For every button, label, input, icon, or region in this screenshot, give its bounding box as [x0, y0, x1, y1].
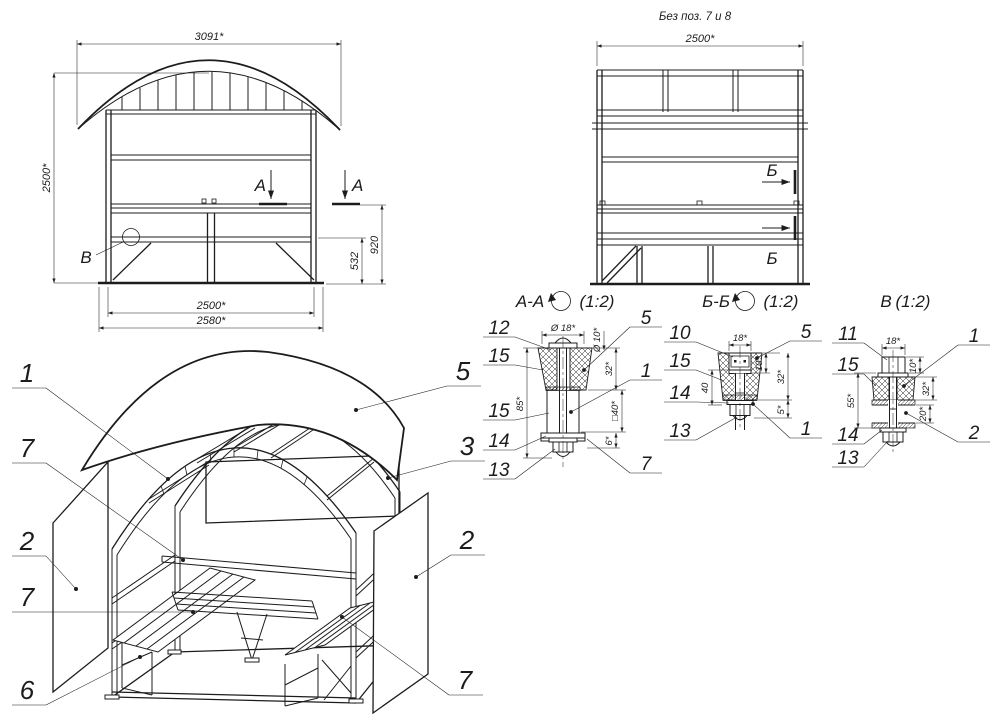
- section-b-label-top: Б: [766, 161, 777, 180]
- dim-text: 5*: [776, 405, 787, 414]
- callout-13: 13: [488, 460, 510, 481]
- dim-text: 18*: [886, 336, 901, 347]
- callout-1: 1: [641, 361, 652, 382]
- section-v: В (1:2) 18*: [832, 292, 990, 469]
- callout-15: 15: [837, 355, 859, 376]
- roof-truss: [106, 72, 316, 114]
- callout-14: 14: [488, 431, 509, 452]
- dim-text: 920: [369, 235, 381, 254]
- callout-15b: 15: [488, 401, 510, 422]
- callout-5: 5: [801, 322, 812, 343]
- section-aa-scale: (1:2): [580, 292, 615, 311]
- dim-front-920: 920: [326, 205, 386, 284]
- front-bottom-structure: [98, 213, 324, 283]
- front-rails: [111, 155, 311, 242]
- dim-side-top: 2500*: [597, 33, 803, 66]
- section-a-label-left: А: [254, 176, 266, 195]
- table-beam: [162, 556, 356, 579]
- callout-13: 13: [837, 448, 859, 469]
- dim-front-left: 2500*: [41, 73, 209, 283]
- section-b-label-bottom: Б: [766, 249, 777, 268]
- callout-bench-left: 7: [20, 582, 36, 612]
- side-view: Без поз. 7 и 8 2500*: [590, 11, 810, 284]
- exploded-view: 1 7 2 7 6 5 3 2 7: [12, 351, 485, 713]
- left-brace: [113, 243, 151, 280]
- callout-1: 1: [969, 326, 980, 347]
- callout-rear-panel: 3: [460, 431, 475, 461]
- drawing-canvas: В А А 3091* 2500* 920: [0, 0, 1000, 727]
- dim-front-532: 532: [318, 238, 366, 284]
- callout-13: 13: [669, 421, 691, 442]
- detail-v-label: В: [80, 248, 91, 267]
- section-a-markers: А А: [254, 170, 364, 204]
- rotated-symbol-icon: [732, 292, 755, 311]
- rotated-symbol-icon: [548, 292, 571, 311]
- dim-text: 32*: [921, 382, 932, 397]
- side-panel-left: [53, 462, 108, 692]
- dim-text: 20*: [918, 407, 929, 423]
- dim-text: 18*: [733, 333, 748, 344]
- callout-bench-right: 7: [458, 665, 474, 695]
- callout-12: 12: [488, 318, 510, 339]
- callout-7: 7: [641, 454, 653, 475]
- front-view: В А А 3091* 2500* 920: [41, 31, 386, 332]
- dim-text: 2500*: [685, 33, 715, 45]
- dim-text: 2500*: [41, 163, 53, 193]
- roof-sheet-outer-arc: [78, 60, 340, 130]
- right-brace: [276, 243, 314, 280]
- callout-14: 14: [837, 425, 858, 446]
- callout-roof-sheet: 5: [456, 356, 471, 386]
- frame-posts: [112, 492, 400, 700]
- section-v-title: В: [880, 292, 891, 311]
- drawing-sheet: В А А 3091* 2500* 920: [0, 0, 1000, 727]
- side-view-note: Без поз. 7 и 8: [659, 11, 732, 23]
- section-bb-title: Б-Б: [702, 292, 730, 311]
- dim-text: 532: [349, 252, 361, 270]
- dim-text: 2500*: [196, 300, 226, 312]
- table-legs: [237, 612, 267, 660]
- section-b-markers: Б Б: [762, 161, 795, 268]
- dim-text: 2580*: [196, 315, 226, 327]
- dim-front-bottom-inner: 2500*: [108, 287, 314, 317]
- side-frame: [592, 70, 808, 245]
- detail-v-marker: В: [80, 229, 139, 268]
- dim-text: Ø 18*: [550, 323, 576, 334]
- dim-text: □40*: [610, 401, 621, 421]
- dim-text: 32*: [604, 362, 615, 377]
- dim-text: 6*: [604, 436, 615, 445]
- dim-front-top: 3091*: [77, 31, 341, 126]
- dim-text: 40: [700, 382, 711, 393]
- bottom-rails: [112, 645, 400, 703]
- callout-1: 1: [801, 419, 812, 440]
- dim-text: 3091*: [195, 31, 224, 43]
- dim-text: 10*: [908, 359, 919, 374]
- section-aa-geometry: [538, 336, 592, 467]
- callout-15: 15: [669, 351, 691, 372]
- section-aa-title: А-А: [515, 292, 544, 311]
- callout-5: 5: [641, 308, 652, 329]
- callout-14: 14: [669, 383, 690, 404]
- side-panel-right: [373, 493, 428, 713]
- callout-10: 10: [669, 323, 691, 344]
- callout-11: 11: [838, 324, 858, 345]
- callout-support: 6: [20, 675, 35, 705]
- callout-frame: 1: [20, 358, 34, 388]
- dim-text: 55*: [846, 394, 857, 409]
- dim-text: Ø 10*: [592, 328, 603, 354]
- section-bb: Б-Б (1:2) 1: [664, 292, 822, 443]
- section-a-label-right: А: [351, 176, 363, 195]
- section-bb-scale: (1:2): [764, 292, 799, 311]
- section-v-scale: (1:2): [896, 292, 931, 311]
- roof-sheet-inner-arc: [78, 71, 340, 130]
- dim-text: 85*: [515, 397, 526, 412]
- callout-15: 15: [488, 346, 510, 367]
- callout-beam: 7: [20, 433, 36, 463]
- section-aa: А-А (1:2): [483, 292, 662, 482]
- callout-2: 2: [968, 423, 980, 444]
- callout-panel-left: 2: [19, 526, 35, 556]
- callout-panel-right: 2: [459, 525, 475, 555]
- dim-text: 32*: [776, 370, 787, 385]
